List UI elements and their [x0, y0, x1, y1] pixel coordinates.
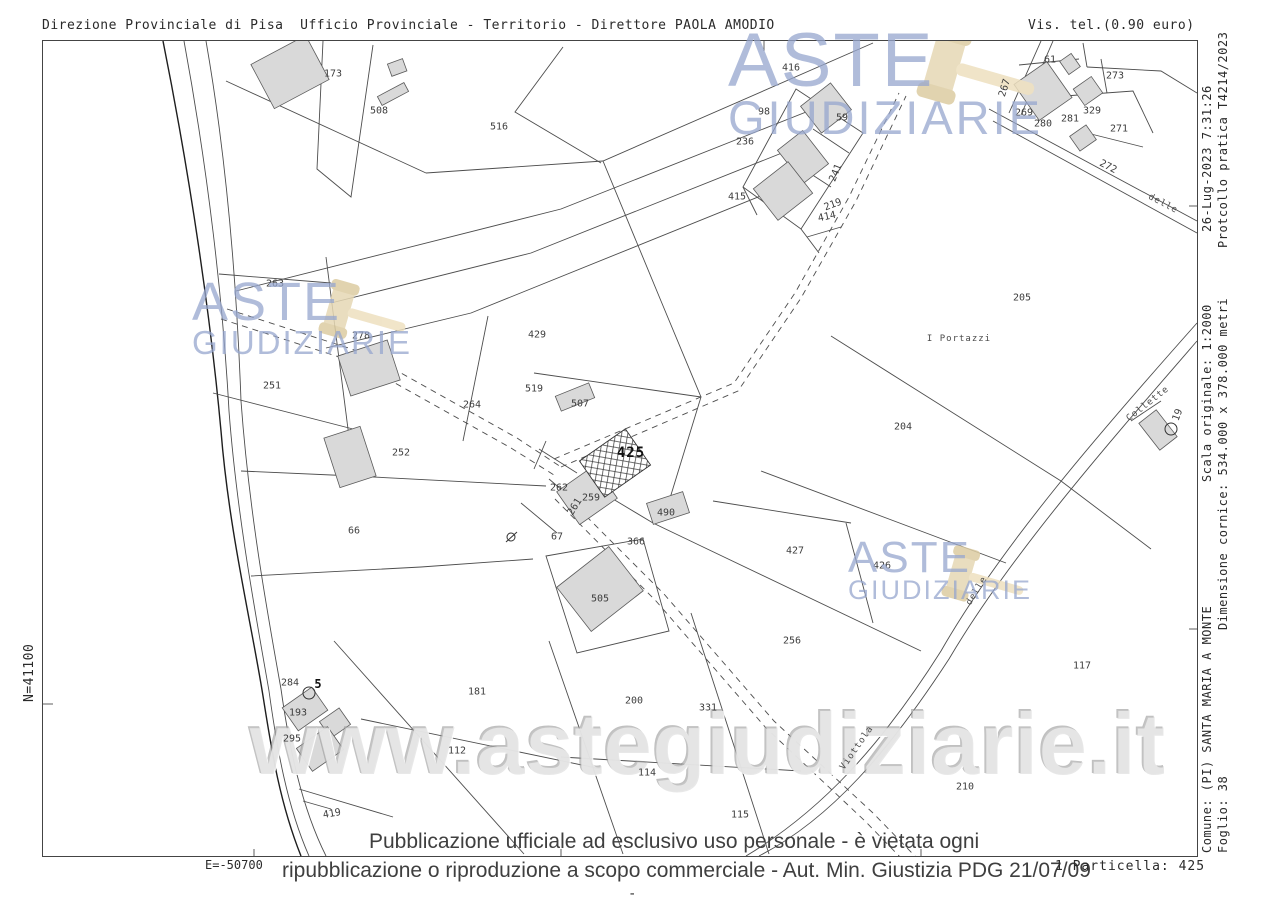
protocol-label: Protcollo pratica T4214/2023: [1216, 32, 1230, 248]
frame-size-label: Dimensione cornice: 534.000 x 378.000 me…: [1216, 298, 1230, 630]
particella-label: 1 Particella: 425: [1055, 859, 1205, 874]
map-frame: www.astegiudiziarie.it 17350851641698592…: [42, 40, 1198, 857]
foglio-label: Foglio: 38: [1216, 776, 1230, 853]
disclaimer-line1: Pubblicazione ufficiale ad esclusivo uso…: [369, 830, 979, 854]
print-datetime-label: 26-Lug-2023 7:31:26: [1200, 85, 1214, 232]
map-canvas: www.astegiudiziarie.it 17350851641698592…: [42, 40, 1198, 857]
east-coordinate-label: E=-50700: [205, 858, 263, 872]
cadastral-map-page: Direzione Provinciale di Pisa Ufficio Pr…: [0, 0, 1280, 905]
header-fee-note: Vis. tel.(0.90 euro): [1028, 18, 1195, 33]
comune-label: Comune: (PI) SANTA MARIA A MONTE: [1200, 606, 1214, 853]
end-dash: -: [628, 886, 636, 902]
north-coordinate-label: N=41100: [22, 644, 37, 702]
disclaimer-line2: ripubblicazione o riproduzione a scopo c…: [282, 859, 1091, 883]
header-office-title: Direzione Provinciale di Pisa Ufficio Pr…: [42, 18, 775, 33]
scale-label: Scala originale: 1:2000: [1200, 304, 1214, 482]
map-linework: [42, 40, 1198, 857]
